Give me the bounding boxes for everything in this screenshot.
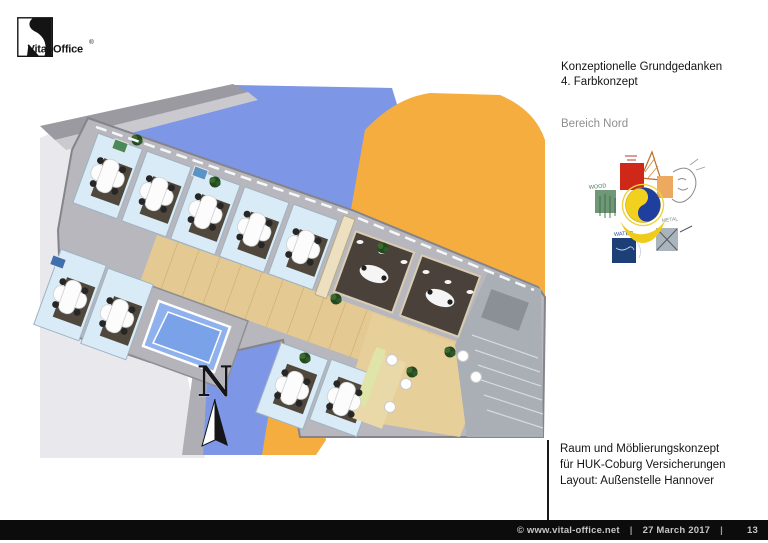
- project-rule: [547, 440, 549, 520]
- date-label: 27 March 2017: [643, 525, 711, 536]
- project-block: Raum und Möblierungskonzept für HUK-Cobu…: [560, 441, 726, 489]
- separator: |: [720, 525, 723, 536]
- project-line2: für HUK-Coburg Versicherungen: [560, 457, 726, 473]
- north-letter: N: [197, 357, 234, 406]
- page-number: 13: [747, 525, 758, 536]
- separator: |: [630, 525, 633, 536]
- project-line1: Raum und Möblierungskonzept: [560, 441, 726, 457]
- copyright-url: © www.vital-office.net: [517, 525, 620, 536]
- slide: Vital-Office ® Konzeptionelle Grundgedan…: [0, 0, 768, 543]
- project-line3: Layout: Außenstelle Hannover: [560, 473, 726, 489]
- status-bar: © www.vital-office.net | 27 March 2017 |…: [0, 520, 768, 540]
